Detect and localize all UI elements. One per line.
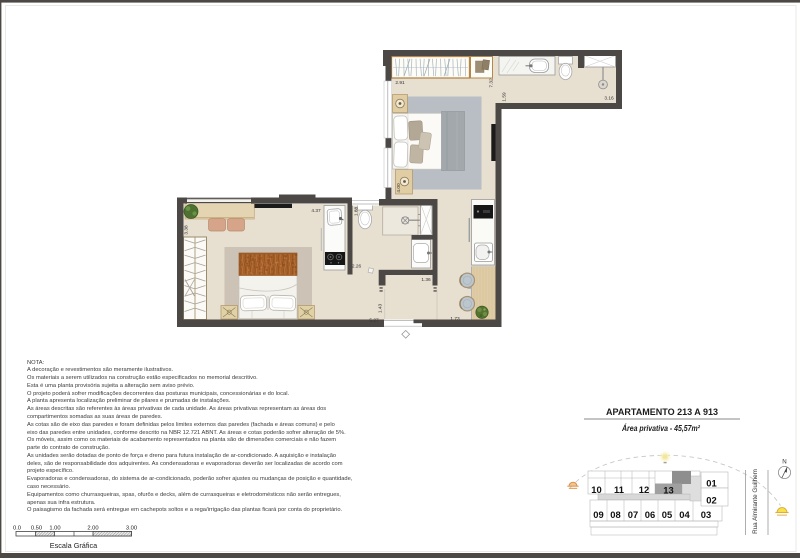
svg-text:05: 05 xyxy=(662,509,672,520)
svg-text:1.36: 1.36 xyxy=(421,277,431,283)
svg-text:13: 13 xyxy=(663,485,673,496)
svg-text:09: 09 xyxy=(593,509,603,520)
svg-text:0.50: 0.50 xyxy=(31,526,42,532)
svg-text:3.00: 3.00 xyxy=(126,526,137,532)
svg-text:1.00: 1.00 xyxy=(49,526,60,532)
svg-text:08: 08 xyxy=(610,509,620,520)
svg-text:N: N xyxy=(782,458,786,465)
svg-text:06: 06 xyxy=(645,509,655,520)
svg-text:01: 01 xyxy=(706,478,716,489)
svg-text:0.0: 0.0 xyxy=(13,526,21,532)
svg-text:2.26: 2.26 xyxy=(352,263,362,269)
svg-text:5.27: 5.27 xyxy=(369,317,379,323)
svg-text:Escala Gráfica: Escala Gráfica xyxy=(50,541,98,550)
svg-text:04: 04 xyxy=(679,509,690,520)
svg-text:1.59: 1.59 xyxy=(502,92,508,102)
svg-text:2.00: 2.00 xyxy=(87,526,98,532)
svg-text:1.43: 1.43 xyxy=(378,304,384,314)
svg-text:10: 10 xyxy=(591,484,601,495)
svg-text:Rua Almirante Guilhem: Rua Almirante Guilhem xyxy=(752,469,759,534)
svg-text:Área privativa - 45,57m²: Área privativa - 45,57m² xyxy=(621,424,700,433)
svg-text:2.91: 2.91 xyxy=(395,80,405,86)
svg-text:3.16: 3.16 xyxy=(604,96,614,102)
svg-text:4.00: 4.00 xyxy=(396,183,402,193)
svg-text:3.38: 3.38 xyxy=(184,225,190,235)
svg-text:02: 02 xyxy=(706,495,716,506)
svg-text:1.88: 1.88 xyxy=(354,207,360,217)
svg-text:APARTAMENTO 213 A 913: APARTAMENTO 213 A 913 xyxy=(606,406,718,417)
svg-text:11: 11 xyxy=(614,484,624,495)
svg-text:12: 12 xyxy=(639,484,649,495)
svg-text:7.32: 7.32 xyxy=(489,78,495,88)
svg-text:1.73: 1.73 xyxy=(450,316,460,322)
svg-text:07: 07 xyxy=(628,509,638,520)
svg-text:4.37: 4.37 xyxy=(311,208,321,214)
svg-text:03: 03 xyxy=(701,509,711,520)
